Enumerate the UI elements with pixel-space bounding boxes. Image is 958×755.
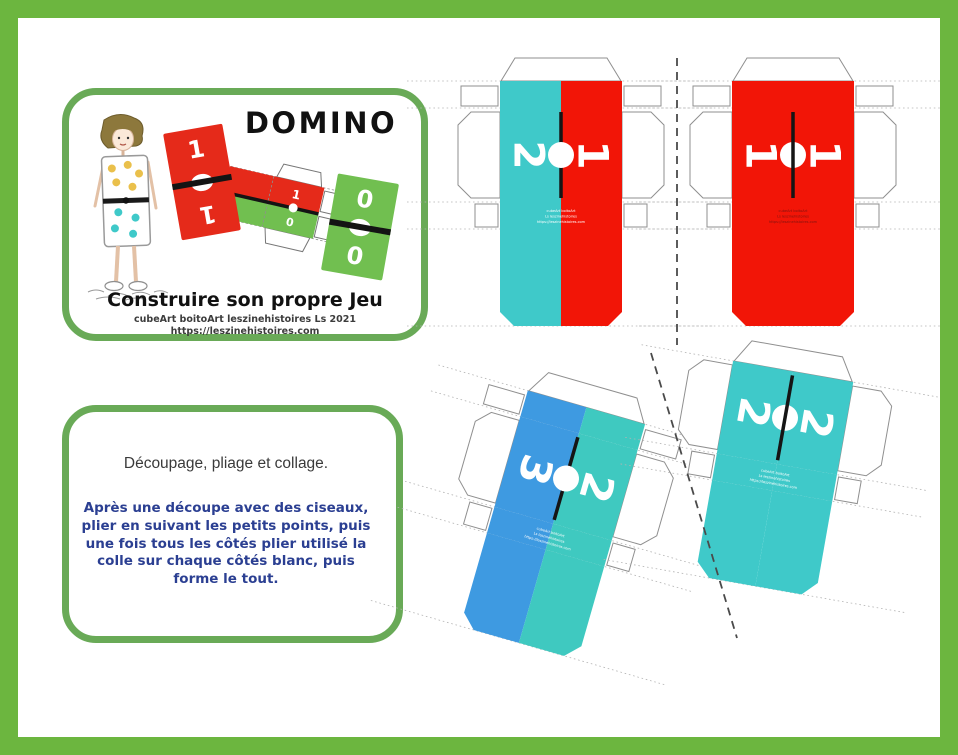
glue-flap <box>733 58 853 81</box>
printable-sheet: DOMINO 1 1 0 <box>0 0 958 755</box>
credit-line: cubeArt boitoArt leszinehistoires Ls 202… <box>95 314 395 325</box>
net-value-left: 2 <box>505 140 554 169</box>
face <box>113 128 134 151</box>
net-value-right: 1 <box>569 140 618 169</box>
net-value-right: 1 <box>801 140 850 169</box>
net-value-left: 1 <box>737 140 786 169</box>
instructions-body: Après une découpe avec des ciseaux, plie… <box>80 500 372 589</box>
cutout-template-net-2-2: 22cubeArt boitoArtLs leszinehistoireshtt… <box>603 319 950 619</box>
net-watermark-line: cubeArt boitoArt <box>547 209 577 213</box>
net-watermark-line: https://leszinehistoires.com <box>769 220 818 224</box>
page-title: DOMINO <box>233 106 409 140</box>
instructions-heading: Découpage, pliage et collage. <box>75 455 377 473</box>
glue-flap <box>458 112 500 198</box>
domino-value-top: 1 <box>165 132 228 166</box>
left-leg <box>116 246 118 282</box>
domino-value-bottom: 1 <box>176 197 239 231</box>
right-leg <box>134 246 136 282</box>
subtitle: Construire son propre Jeu <box>95 289 395 311</box>
net-watermark-line: Ls leszinehistoires <box>545 215 577 219</box>
domino-costume <box>101 155 150 247</box>
glue-flap <box>854 112 896 198</box>
domino-value-bottom: 0 <box>323 237 388 271</box>
glue-flap <box>501 58 621 81</box>
cutout-template-net-1-1: 11cubeArt boitoArtLs leszinehistoireshtt… <box>639 55 947 335</box>
credit-url: https://leszinehistoires.com <box>95 326 395 337</box>
domino-value-top: 0 <box>332 182 397 216</box>
net-watermark-line: cubeArt boitoArt <box>779 209 809 213</box>
net-watermark-line: https://leszinehistoires.com <box>537 220 586 224</box>
net-watermark-line: Ls leszinehistoires <box>777 215 809 219</box>
glue-flap <box>690 112 732 198</box>
